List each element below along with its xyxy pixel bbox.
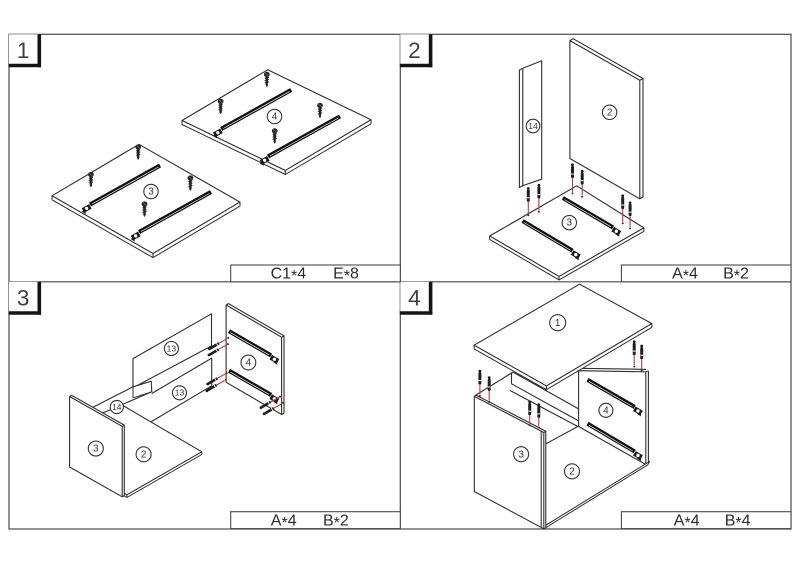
svg-text:2: 2 <box>408 38 421 63</box>
svg-text:A*4: A*4 <box>672 266 698 286</box>
svg-text:2: 2 <box>607 107 613 118</box>
svg-text:A*4: A*4 <box>674 512 700 532</box>
svg-text:C1*4: C1*4 <box>271 266 307 286</box>
svg-text:13: 13 <box>175 388 185 398</box>
svg-text:E*8: E*8 <box>333 266 359 286</box>
svg-text:4: 4 <box>272 112 278 123</box>
svg-text:3: 3 <box>17 285 30 310</box>
svg-text:4: 4 <box>408 285 421 310</box>
svg-text:3: 3 <box>148 187 154 198</box>
svg-text:3: 3 <box>567 218 573 229</box>
svg-text:B*2: B*2 <box>723 266 749 286</box>
svg-text:14: 14 <box>528 121 538 131</box>
svg-text:3: 3 <box>93 444 99 455</box>
svg-text:14: 14 <box>112 402 122 412</box>
svg-text:1: 1 <box>555 318 561 329</box>
svg-text:13: 13 <box>167 343 177 353</box>
svg-text:1: 1 <box>17 38 30 63</box>
svg-text:4: 4 <box>603 405 609 416</box>
svg-text:A*4: A*4 <box>271 512 297 532</box>
svg-text:2: 2 <box>569 466 575 477</box>
svg-text:B*2: B*2 <box>323 512 349 532</box>
svg-text:3: 3 <box>518 449 524 460</box>
svg-text:2: 2 <box>141 449 147 460</box>
svg-text:4: 4 <box>246 358 252 369</box>
svg-text:B*4: B*4 <box>725 512 751 532</box>
